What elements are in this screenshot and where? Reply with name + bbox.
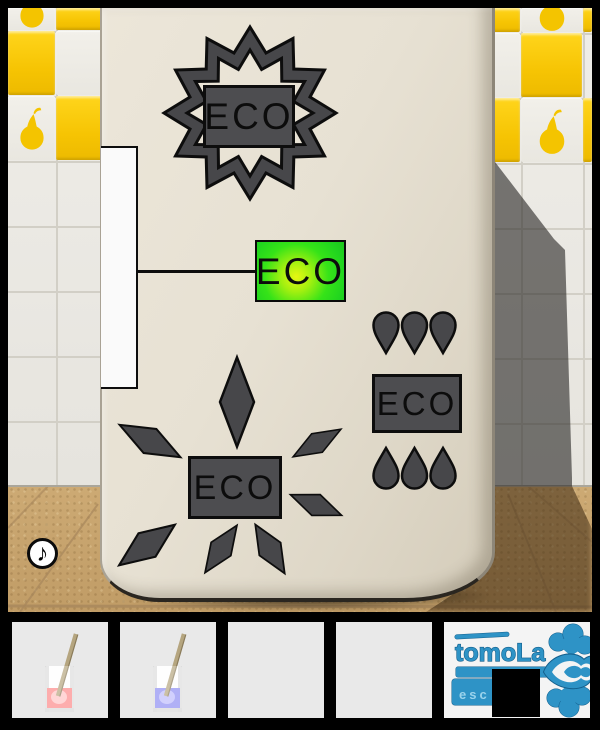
eco-glow-badge[interactable]: ECO: [255, 240, 346, 302]
logo-t-bar: [455, 632, 509, 639]
game-screen: ECO ECO ECO ECO ♪: [0, 0, 600, 730]
grout-line: [8, 356, 103, 358]
side-white-strip[interactable]: [101, 146, 138, 389]
yellow-tile: [8, 31, 55, 95]
yellow-tile: [492, 8, 520, 32]
grout-line: [492, 228, 592, 230]
white-tile: [56, 31, 103, 95]
eco-drops-badge[interactable]: ECO: [372, 374, 462, 433]
black-square-overlay: [492, 669, 540, 717]
grout-line: [8, 161, 103, 163]
yellow-tile: [521, 33, 582, 97]
connector-line: [138, 270, 255, 273]
sound-toggle-button[interactable]: ♪: [27, 538, 58, 569]
pear-icon: [15, 8, 49, 29]
wall-tiles-left: [8, 8, 103, 486]
eco-glow-label: ECO: [256, 253, 345, 290]
yellow-tile: [56, 96, 103, 160]
yellow-tile: [492, 98, 520, 162]
grout-line: [492, 358, 592, 360]
grout-line: [492, 163, 592, 165]
pear-tile: [521, 98, 582, 162]
pear-icon: [15, 105, 49, 151]
inventory-slot-4[interactable]: [336, 622, 432, 718]
white-tile: [492, 33, 520, 97]
grout-line: [8, 421, 103, 423]
inventory-slot-2[interactable]: [120, 622, 216, 718]
door-panel[interactable]: [100, 8, 495, 602]
inventory-slot-1[interactable]: [12, 622, 108, 718]
eco-sun-label: ECO: [194, 471, 277, 505]
inventory-slot-3[interactable]: [228, 622, 324, 718]
pear-tile: [8, 8, 55, 30]
inventory-slot-logo[interactable]: tomoLa esc: [444, 622, 590, 718]
logo-title: tomoLa: [455, 639, 546, 667]
yellow-tile: [583, 98, 592, 162]
wall-tiles-right: [492, 8, 592, 486]
grout-line: [8, 291, 103, 293]
eco-star-label: ECO: [204, 98, 293, 135]
grout-line: [492, 293, 592, 295]
scene-room: ECO ECO ECO ECO ♪: [8, 8, 592, 612]
eco-sun-badge[interactable]: ECO: [188, 456, 282, 519]
yellow-tile: [583, 8, 592, 32]
music-note-icon: ♪: [37, 540, 49, 568]
pear-icon: [534, 8, 570, 32]
eco-drops-label: ECO: [377, 387, 458, 420]
eco-star-badge[interactable]: ECO: [203, 85, 295, 148]
tomola-logo: tomoLa esc: [444, 622, 590, 718]
grout-line: [583, 8, 585, 486]
pear-tile: [521, 8, 582, 32]
beaker-red-icon: [12, 622, 108, 718]
pear-icon: [534, 107, 570, 155]
logo-esc-label: esc: [459, 687, 490, 702]
grout-line: [492, 423, 592, 425]
pear-tile: [8, 96, 55, 160]
grout-line: [8, 226, 103, 228]
beaker-blue-icon: [120, 622, 216, 718]
yellow-tile: [56, 8, 103, 30]
